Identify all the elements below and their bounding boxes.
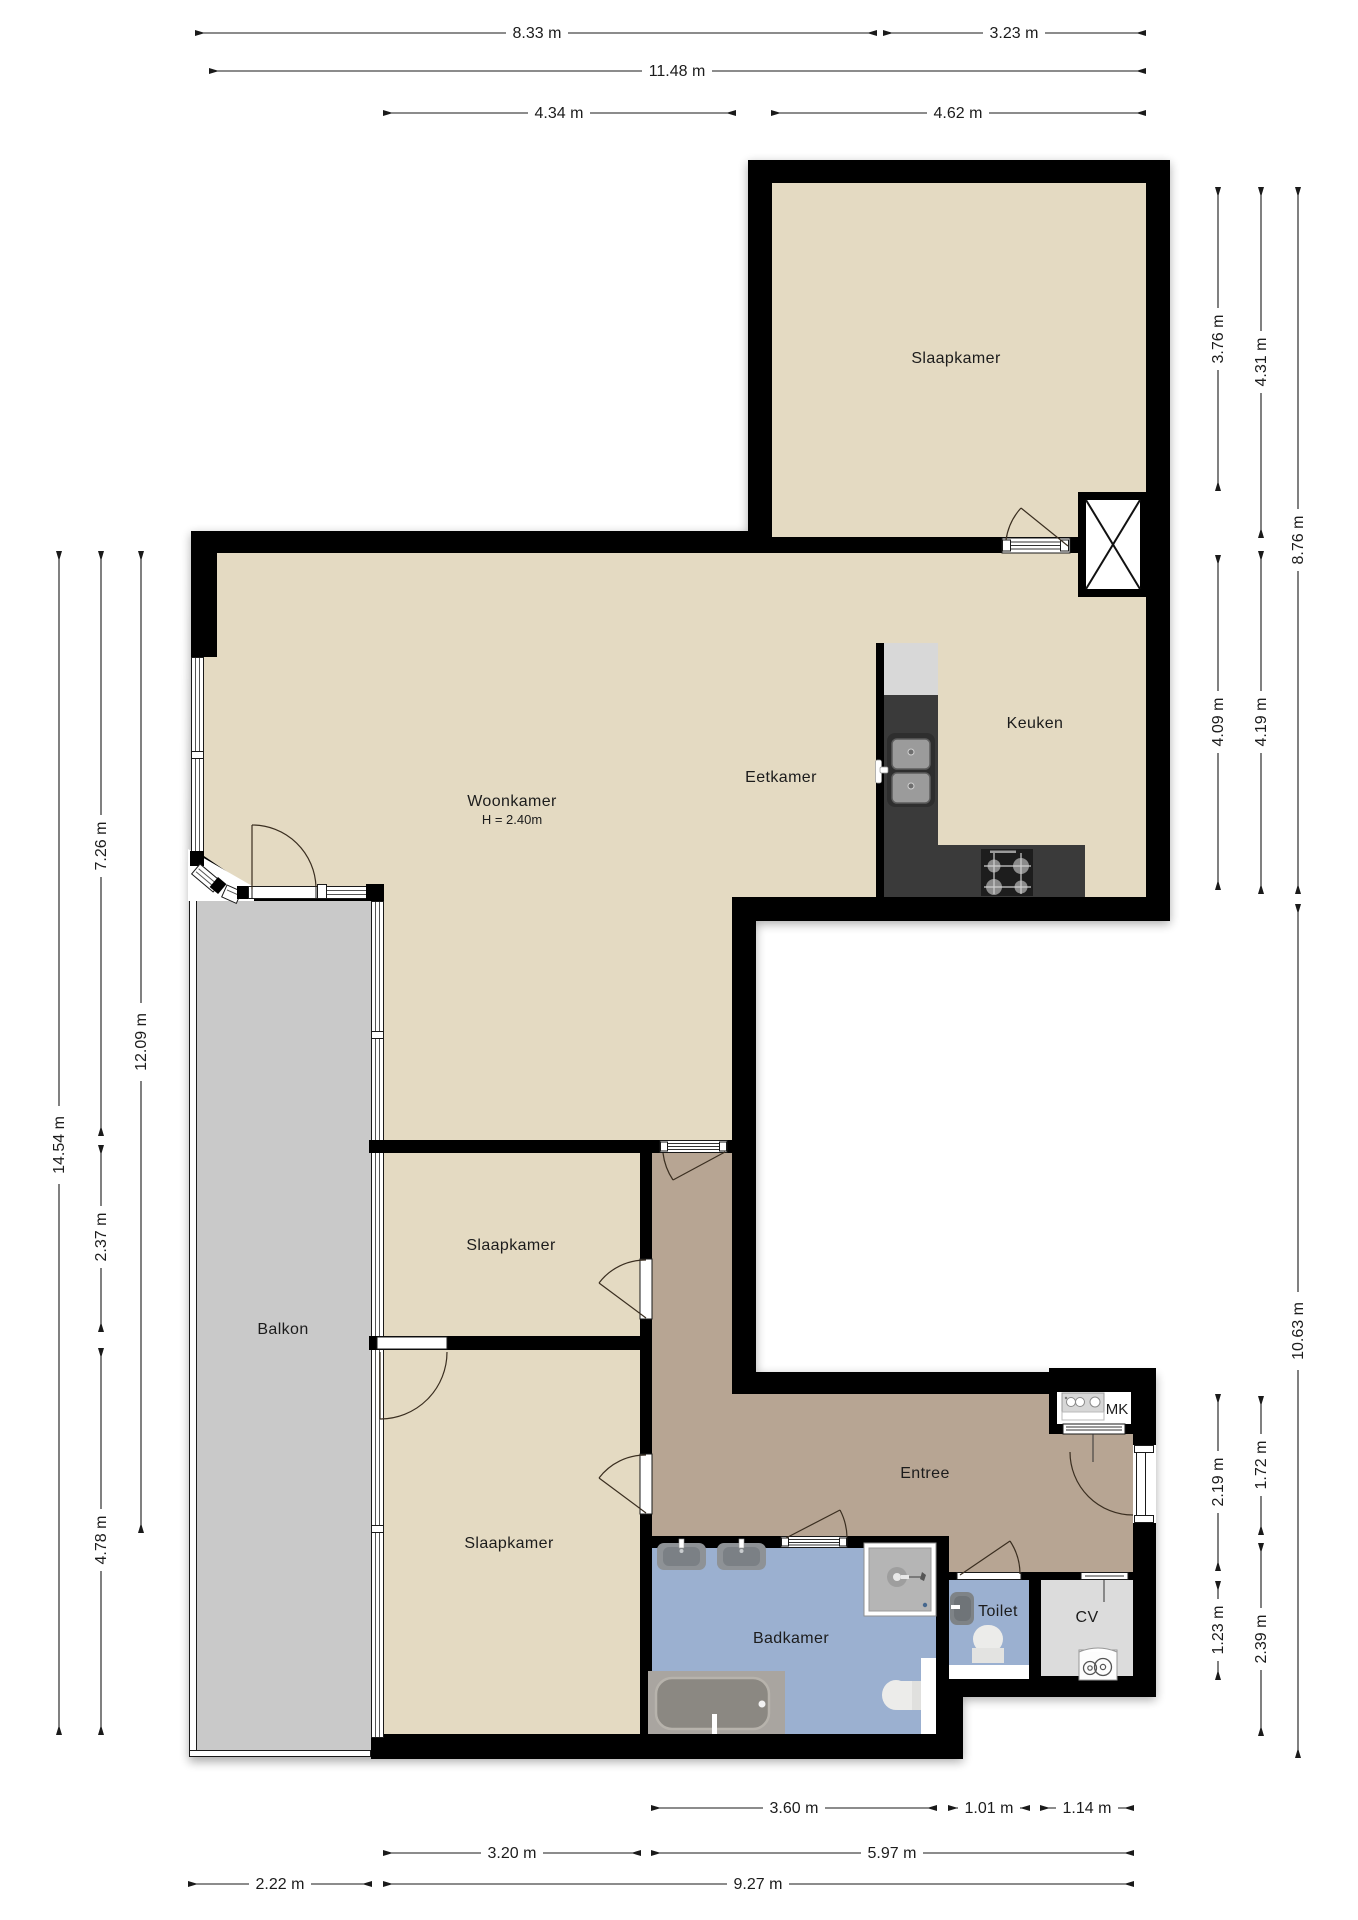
svg-text:Slaapkamer: Slaapkamer: [464, 1535, 554, 1552]
svg-text:Balkon: Balkon: [257, 1321, 308, 1338]
svg-text:Keuken: Keuken: [1007, 715, 1064, 732]
svg-text:11.48 m: 11.48 m: [649, 63, 706, 80]
svg-text:2.39 m: 2.39 m: [1253, 1615, 1270, 1664]
svg-text:Entree: Entree: [900, 1465, 950, 1482]
svg-text:4.31 m: 4.31 m: [1253, 338, 1270, 387]
svg-text:4.34 m: 4.34 m: [535, 105, 584, 122]
svg-text:12.09 m: 12.09 m: [133, 1013, 150, 1071]
svg-text:9.27 m: 9.27 m: [734, 1876, 783, 1893]
svg-text:2.22 m: 2.22 m: [256, 1876, 305, 1893]
svg-text:Slaapkamer: Slaapkamer: [466, 1237, 556, 1254]
svg-text:2.19 m: 2.19 m: [1210, 1458, 1227, 1507]
svg-text:3.60 m: 3.60 m: [770, 1800, 819, 1817]
svg-text:Woonkamer: Woonkamer: [467, 793, 557, 810]
svg-text:Eetkamer: Eetkamer: [745, 769, 817, 786]
svg-text:Toilet: Toilet: [978, 1603, 1018, 1620]
svg-text:1.72 m: 1.72 m: [1253, 1441, 1270, 1490]
svg-text:4.78 m: 4.78 m: [93, 1516, 110, 1565]
svg-text:10.63 m: 10.63 m: [1290, 1302, 1307, 1360]
svg-text:MK: MK: [1106, 1401, 1129, 1418]
svg-text:2.37 m: 2.37 m: [93, 1213, 110, 1262]
svg-text:3.76 m: 3.76 m: [1210, 315, 1227, 364]
svg-text:4.09 m: 4.09 m: [1210, 698, 1227, 747]
svg-text:4.62 m: 4.62 m: [934, 105, 983, 122]
svg-text:3.23 m: 3.23 m: [990, 25, 1039, 42]
svg-text:3.20 m: 3.20 m: [488, 1845, 537, 1862]
svg-text:8.33 m: 8.33 m: [513, 25, 562, 42]
svg-text:8.76 m: 8.76 m: [1290, 516, 1307, 565]
svg-text:H = 2.40m: H = 2.40m: [482, 812, 542, 827]
svg-text:Slaapkamer: Slaapkamer: [911, 350, 1001, 367]
svg-text:1.23 m: 1.23 m: [1210, 1606, 1227, 1655]
svg-text:4.19 m: 4.19 m: [1253, 698, 1270, 747]
svg-text:7.26 m: 7.26 m: [93, 822, 110, 871]
svg-text:1.14 m: 1.14 m: [1063, 1800, 1112, 1817]
svg-text:CV: CV: [1075, 1609, 1098, 1626]
svg-text:5.97 m: 5.97 m: [868, 1845, 917, 1862]
svg-text:14.54 m: 14.54 m: [51, 1116, 68, 1174]
svg-text:1.01 m: 1.01 m: [965, 1800, 1014, 1817]
svg-text:Badkamer: Badkamer: [753, 1630, 829, 1647]
